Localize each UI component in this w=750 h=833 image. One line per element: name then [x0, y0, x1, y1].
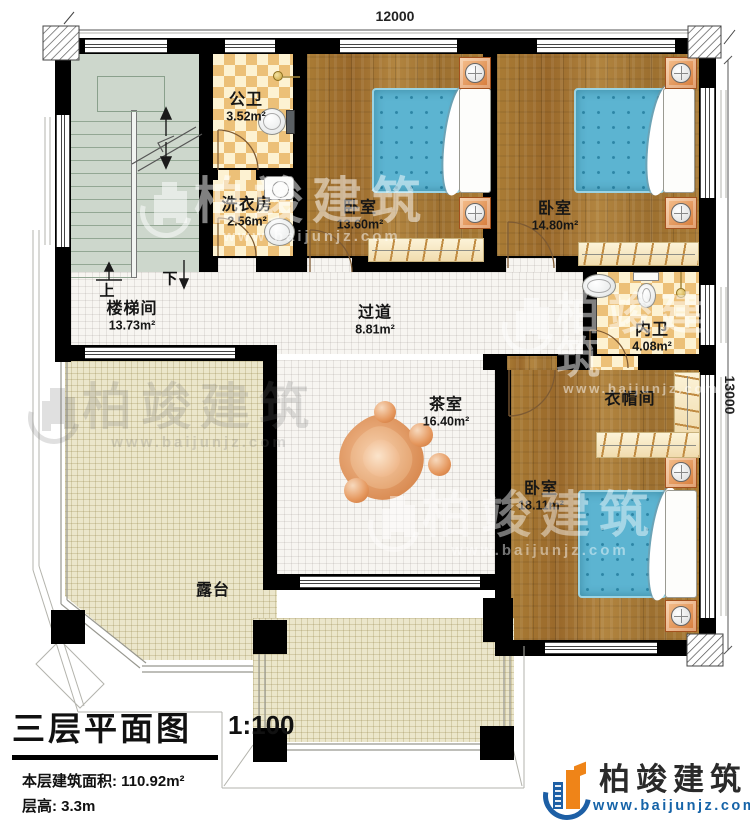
- window-terrace-door: [85, 347, 235, 359]
- shower-head-ensuite: [676, 288, 686, 298]
- bed-bedroom2: [574, 88, 695, 193]
- company-logo-icon: [543, 764, 593, 820]
- bed-headboard: [459, 88, 491, 193]
- nightstand-lamp: [459, 57, 491, 89]
- room-label-ensuite: 内卫 4.08m²: [632, 322, 672, 355]
- plan-title: 三层平面图: [12, 702, 192, 750]
- window-bedroom2-right: [700, 88, 715, 198]
- room-label-tea-room: 茶室 16.40m²: [423, 397, 470, 430]
- floor-area-note: 本层建筑面积: 110.92m²: [22, 770, 185, 791]
- toilet-tank: [286, 110, 295, 134]
- room-label-terrace: 露台: [196, 582, 230, 600]
- stair-rail: [131, 110, 137, 278]
- window-stairwell-top: [85, 39, 167, 53]
- terrace-post-mid: [253, 620, 287, 654]
- opening-bedroom3-door: [507, 356, 557, 370]
- nightstand-lamp: [665, 600, 697, 632]
- room-label-bedroom2: 卧室 14.80m²: [532, 201, 579, 234]
- dimension-right: 13000: [722, 376, 738, 415]
- opening-ensuite-door: [590, 356, 638, 370]
- terrace-post-bay-se: [480, 726, 514, 760]
- stair-treads-left: [71, 112, 131, 278]
- wall-bath-bedroom1: [293, 38, 307, 272]
- tea-stone-sphere: [428, 453, 451, 476]
- company-logo-text: 柏竣建筑 www.baijunjz.com: [593, 764, 750, 814]
- room-label-laundry: 洗衣房 2.56m²: [221, 197, 272, 230]
- terrace-floor: [65, 361, 277, 660]
- tea-stone-sphere: [344, 478, 369, 503]
- stair-up-label: 上: [99, 280, 114, 301]
- stair-landing: [97, 76, 165, 112]
- room-label-public-bath: 公卫 3.52m²: [226, 92, 266, 125]
- window-bedroom3-bottom: [545, 642, 657, 654]
- wardrobe-bedroom2: [578, 242, 699, 266]
- nightstand-lamp: [665, 197, 697, 229]
- toilet-ensuite: [637, 283, 656, 308]
- nightstand-lamp: [459, 197, 491, 229]
- stair-treads-right: [137, 112, 199, 252]
- wall-corridor-ensuite: [583, 256, 597, 370]
- nightstand-lamp: [665, 456, 697, 488]
- cloakroom-rack-vertical: [674, 372, 700, 434]
- room-label-bedroom1: 卧室 13.60m²: [337, 200, 384, 233]
- wall-pier-tea-se: [483, 598, 513, 642]
- window-stairwell-left: [56, 115, 70, 247]
- room-label-stairwell: 楼梯间 13.73m²: [106, 301, 157, 334]
- shower-head-public: [273, 71, 283, 81]
- sink-ensuite: [582, 274, 616, 298]
- wall-stairs-bath: [199, 38, 213, 272]
- room-label-bedroom3: 卧室 18.11m²: [518, 481, 564, 514]
- window-ensuite-right: [700, 285, 715, 345]
- wardrobe-bedroom1: [368, 238, 484, 262]
- wall-terrace-tea: [263, 345, 277, 590]
- bed-headboard: [663, 88, 695, 193]
- window-bedroom2-top: [537, 39, 675, 53]
- opening-bedroom2-door: [506, 258, 556, 272]
- stair-down-label: 下: [162, 268, 177, 289]
- bed-headboard: [665, 490, 697, 598]
- window-tea-bottom: [300, 576, 480, 588]
- terrace-post-sw: [51, 610, 85, 644]
- dimension-top: 12000: [376, 8, 415, 24]
- bed-bedroom3: [578, 490, 697, 598]
- window-public-bath-top: [225, 39, 275, 53]
- window-bedroom1-top: [340, 39, 457, 53]
- tea-table-stone-core: [357, 434, 406, 483]
- tea-stone-sphere: [374, 401, 396, 423]
- window-bedroom3-right: [700, 375, 715, 618]
- bed-bedroom1: [372, 88, 491, 193]
- opening-public-bath-door: [218, 170, 256, 180]
- plan-scale: 1:100: [228, 710, 295, 741]
- nightstand-lamp: [665, 57, 697, 89]
- title-underline: [12, 755, 218, 760]
- opening-bedroom1-door: [307, 258, 352, 272]
- cloakroom-rack-horizontal: [596, 432, 700, 458]
- floor-plan-canvas: 公卫 3.52m² 洗衣房 2.56m² 卧室 13.60m² 卧室 14.80…: [0, 0, 750, 833]
- room-label-corridor: 过道 8.81m²: [355, 305, 395, 338]
- company-logo: 柏竣建筑 www.baijunjz.com: [543, 764, 750, 820]
- room-label-cloakroom: 衣帽间: [604, 391, 655, 409]
- toilet-tank: [633, 272, 659, 281]
- floor-height-note: 层高: 3.3m: [22, 795, 95, 816]
- opening-laundry-door: [218, 258, 256, 272]
